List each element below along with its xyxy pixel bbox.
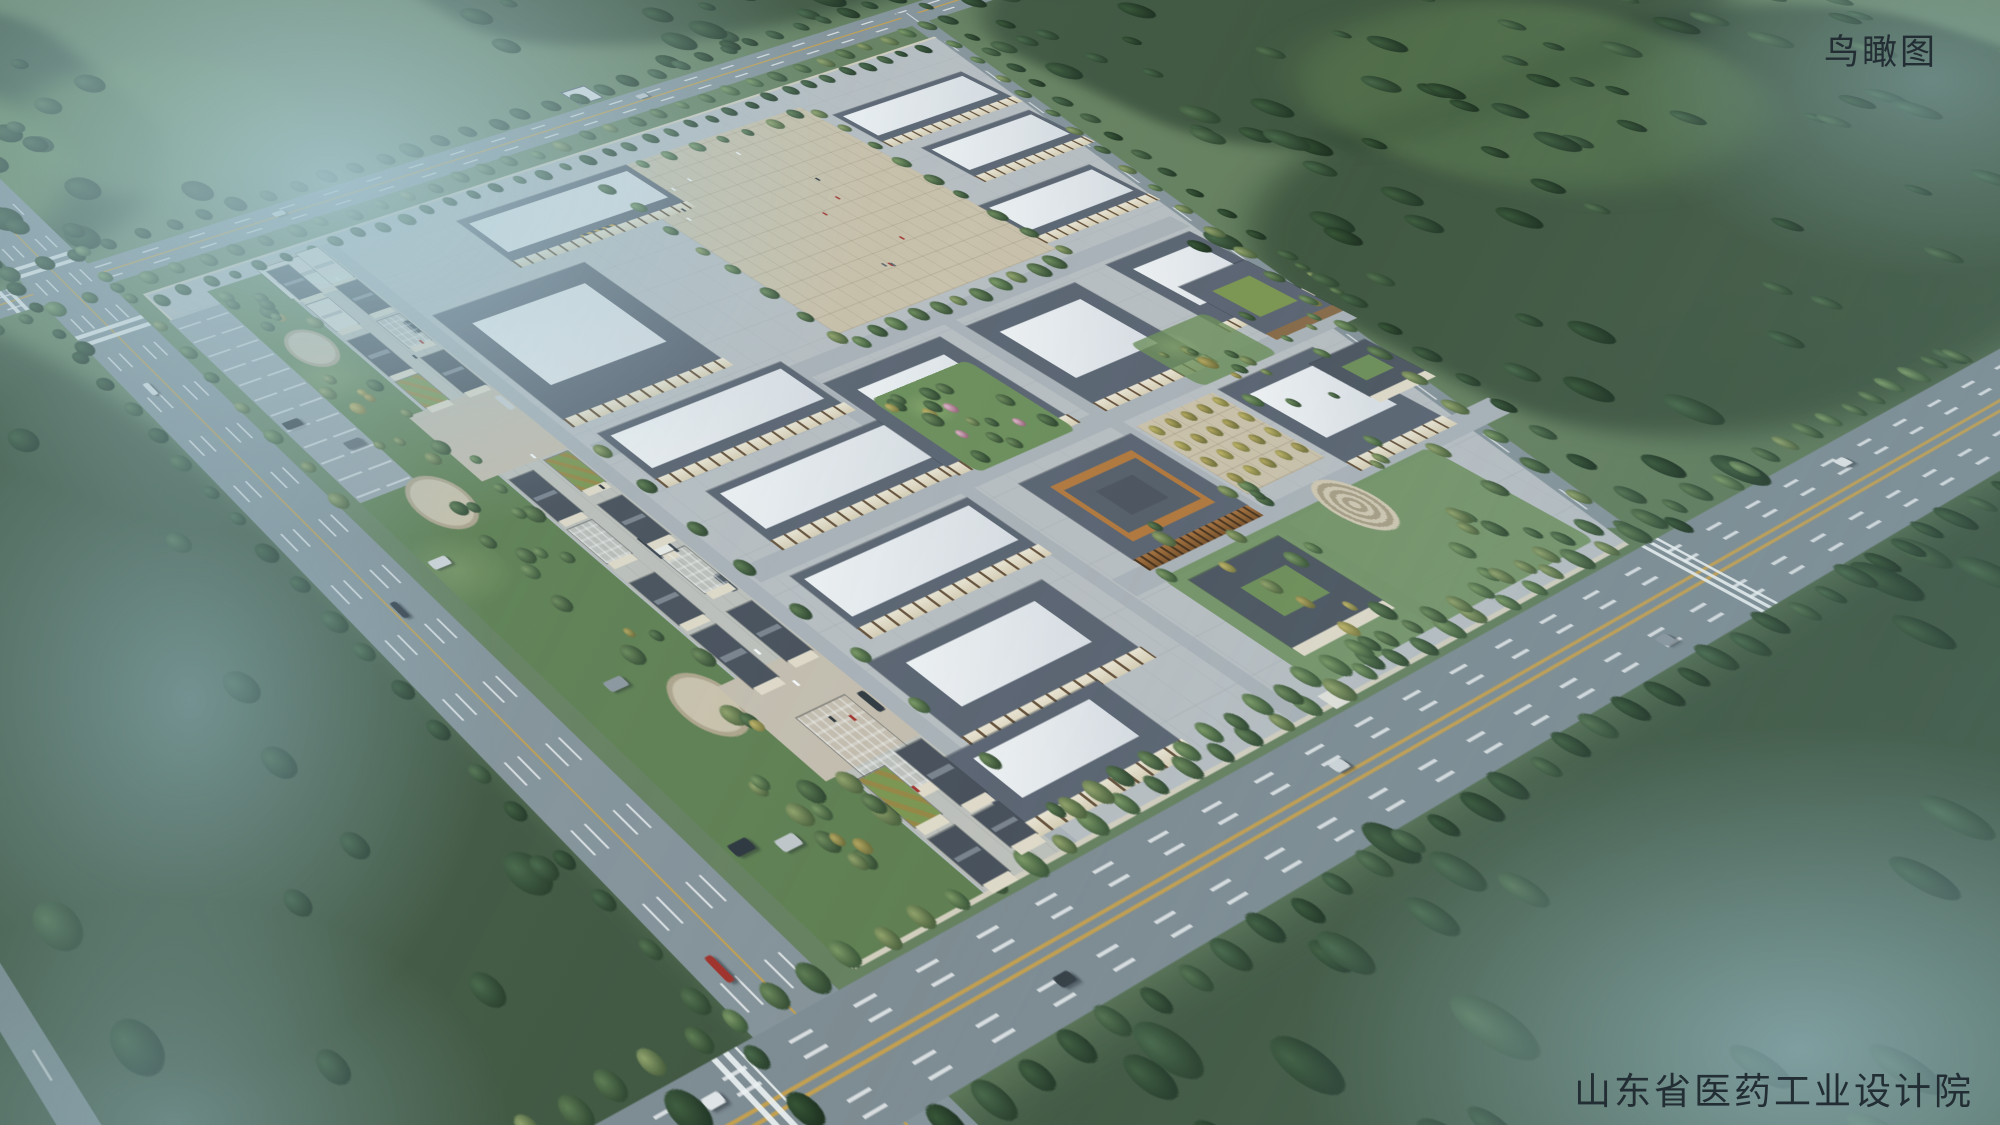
rendering-canvas: 鸟瞰图 山东省医药工业设计院 bbox=[0, 0, 2000, 1125]
view-title: 鸟瞰图 bbox=[1824, 24, 1938, 75]
design-institute-credit: 山东省医药工业设计院 bbox=[1574, 1061, 1974, 1115]
